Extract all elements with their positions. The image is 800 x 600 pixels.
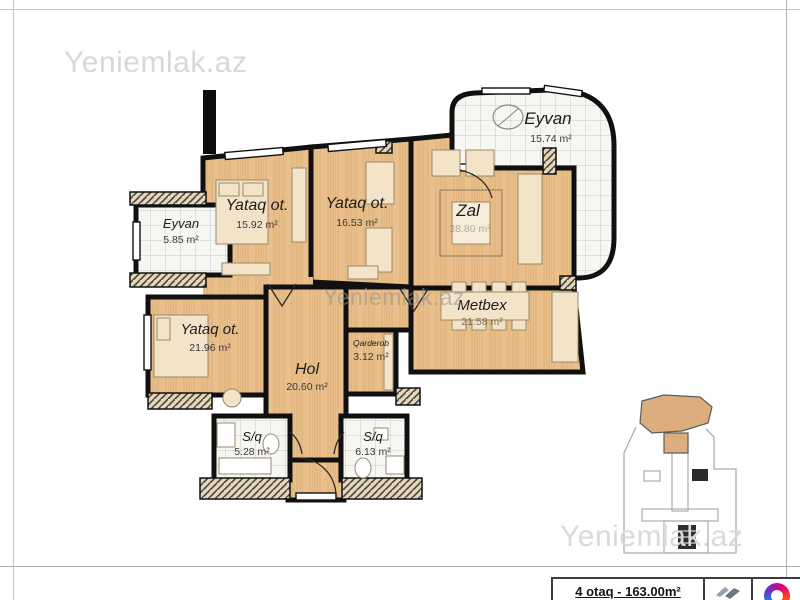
- area-zal: 38.80 m²: [449, 223, 491, 235]
- key-plan-unit-highlight: [640, 395, 712, 433]
- label-yataq-1: Yataq ot.: [226, 197, 289, 214]
- area-sq-right: 6.13 m²: [355, 446, 391, 458]
- q-logo-icon: [764, 583, 790, 600]
- label-zal: Zal: [455, 201, 481, 220]
- sofa: [518, 174, 542, 264]
- area-hol: 20.60 m²: [286, 381, 328, 393]
- watermark-top-left: Yeniemlak.az: [64, 46, 247, 80]
- cabinet-2b: [366, 228, 392, 272]
- label-sq-left: S/q: [242, 429, 262, 444]
- label-hol: Hol: [295, 361, 319, 378]
- area-metbex: 21.58 m²: [461, 316, 503, 328]
- watermark-center: Yeniemlak.az: [323, 284, 465, 311]
- area-eyvan-left: 5.85 m²: [163, 234, 199, 246]
- toilet-right: [355, 458, 371, 478]
- side-table: [223, 389, 241, 407]
- area-yataq-3: 21.96 m²: [189, 342, 231, 354]
- developer-wing-icon: [713, 583, 743, 600]
- area-sq-left: 5.28 m²: [234, 446, 270, 458]
- kitchen-counter: [552, 292, 578, 362]
- developer-logo-cell: [705, 579, 753, 600]
- area-qarderob: 3.12 m²: [353, 351, 389, 363]
- armchair-2: [466, 150, 494, 176]
- plan-summary-text: 4 otaq - 163.00m²: [575, 584, 681, 599]
- room-yataq-2: [311, 139, 411, 287]
- plan-summary-cell: 4 otaq - 163.00m²: [553, 579, 705, 600]
- area-yataq-2: 16.53 m²: [336, 217, 378, 229]
- label-eyvan-left: Eyvan: [163, 216, 199, 231]
- label-eyvan-top: Eyvan: [524, 109, 571, 128]
- sink-left: [217, 423, 235, 447]
- watermark-bottom-right: Yeniemlak.az: [560, 520, 743, 554]
- wall-stub-top: [203, 90, 216, 154]
- agency-logo-cell: [753, 579, 800, 600]
- floorplan-page: Eyvan 15.74 m² Eyvan 5.85 m² Yataq ot. 1…: [0, 0, 800, 600]
- area-yataq-1: 15.92 m²: [236, 219, 278, 231]
- label-sq-right: S/q: [363, 429, 383, 444]
- area-eyvan-top: 15.74 m²: [530, 133, 572, 145]
- label-yataq-2: Yataq ot.: [326, 195, 389, 212]
- armchair-1: [432, 150, 460, 176]
- bathtub: [219, 458, 271, 474]
- wardrobe-1: [292, 168, 306, 242]
- label-yataq-3: Yataq ot.: [181, 321, 240, 338]
- washing-machine: [386, 456, 404, 474]
- label-qarderob: Qarderob: [353, 338, 389, 348]
- plan-info-box: 4 otaq - 163.00m²: [551, 577, 800, 600]
